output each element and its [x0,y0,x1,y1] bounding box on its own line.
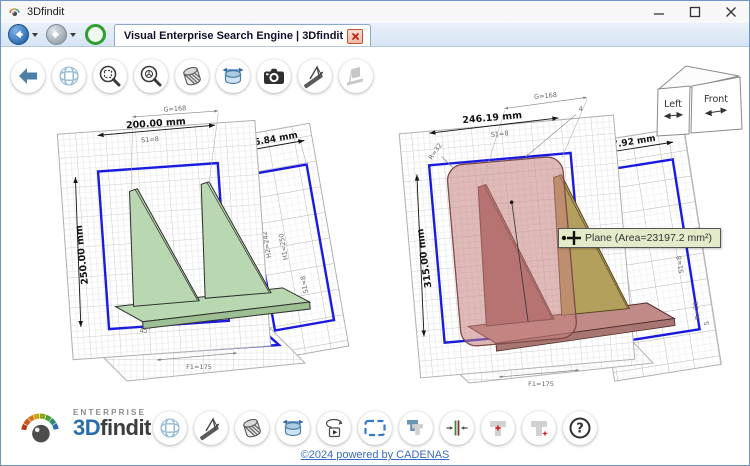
maximize-button[interactable] [677,1,713,23]
browser-tab[interactable]: Visual Enterprise Search Engine | 3Dfind… [114,24,371,46]
dim-s1-top: S1=8 [141,135,159,144]
measure-angle-button[interactable] [298,59,332,93]
view-cube-face-left[interactable] [657,86,690,136]
dim-leader-4: 4 [578,105,583,113]
part-origin-corner-icon [526,415,552,441]
back-arrow-icon [13,29,24,40]
part-origin-center-button[interactable] [481,411,515,445]
measure-angle-button-bottom[interactable] [194,411,228,445]
nav-forward-history-dropdown[interactable] [70,33,76,37]
tab-close-icon [351,32,360,41]
crosshair-cursor-icon [561,230,583,246]
measure-feature-icon [343,63,369,89]
forward-arrow-icon [51,29,62,40]
camera-icon [261,63,287,89]
wireframe-mesh-button[interactable] [52,59,86,93]
nav-forward-button[interactable] [46,24,67,45]
brand-logo-text: ENTERPRISE 3Dfindit [73,408,151,438]
app-logo-icon [7,6,22,19]
compare-parts-icon [403,415,429,441]
plane-area-tooltip: Plane (Area=23197.2 mm²) [558,228,721,248]
back-tool-button[interactable] [11,59,45,93]
nav-back-history-dropdown[interactable] [32,33,38,37]
zoom-frame-icon [362,415,388,441]
minimize-icon [653,6,665,18]
dim-s1-top: S1=8 [490,129,508,139]
tooltip-text: Plane (Area=23197.2 mm²) [585,232,712,244]
view-cube[interactable]: Left Front [646,59,746,151]
part-origin-center-icon [485,415,511,441]
measure-angle-icon [198,415,224,441]
view-cube-left-label: Left [664,99,682,110]
nav-back-button[interactable] [8,24,29,45]
dim-f1: F1=175 [186,363,212,371]
maximize-icon [689,6,701,18]
zoom-select-button[interactable] [134,59,168,93]
view-cube-front-label: Front [704,94,728,105]
nav-reload-button[interactable] [85,24,106,45]
tab-title: Visual Enterprise Search Engine | 3Dfind… [124,30,343,42]
compare-parts-button[interactable] [399,411,433,445]
measure-diameter-icon [280,415,306,441]
part-origin-corner-button[interactable] [522,411,556,445]
close-button[interactable] [713,1,749,23]
viewer-toolbar-bottom: ? [153,411,597,445]
wireframe-mesh-icon [56,63,82,89]
back-arrow-icon [15,63,41,89]
help-button[interactable]: ? [563,411,597,445]
section-view-button[interactable] [175,59,209,93]
section-view-button-bottom[interactable] [235,411,269,445]
copyright-link[interactable]: ©2024 powered by CADENAS [1,449,749,461]
help-icon: ? [567,415,593,441]
zoom-fit-button[interactable] [93,59,127,93]
measure-angle-icon [302,63,328,89]
align-parts-button[interactable] [440,411,474,445]
dim-angle: 45° [139,326,151,335]
minimize-button[interactable] [641,1,677,23]
window-title: 3Dfindit [27,6,64,18]
brand-logo-icon [11,405,69,453]
tab-close-button[interactable] [347,29,363,44]
viewer-toolbar-top [11,59,373,93]
align-parts-icon [444,415,470,441]
view-cube-face-front[interactable] [691,77,742,133]
help-glyph: ? [576,422,584,437]
section-view-icon [239,415,265,441]
dim-g: G=168 [163,104,186,114]
highlighted-plane[interactable] [446,156,577,347]
app-window: 3Dfindit Visual Enterprise Search Engine… [0,0,750,466]
zoom-fit-icon [97,63,123,89]
window-controls [641,1,749,23]
measure-diameter-button-bottom[interactable] [276,411,310,445]
close-icon [725,6,737,18]
animate-rotate-button[interactable] [317,411,351,445]
screenshot-button[interactable] [257,59,291,93]
zoom-select-icon [138,63,164,89]
wireframe-mesh-icon [157,415,183,441]
measure-diameter-button[interactable] [216,59,250,93]
brand-3d: 3D [73,415,100,440]
zoom-frame-button[interactable] [358,411,392,445]
dim-f1: F1=175 [528,380,554,388]
wireframe-mesh-button-bottom[interactable] [153,411,187,445]
section-view-icon [179,63,205,89]
title-bar: 3Dfindit [1,1,749,24]
measure-feature-button-disabled[interactable] [339,59,373,93]
measure-diameter-icon [220,63,246,89]
brand-findit: findit [100,415,151,440]
rotate-play-icon [321,415,347,441]
dim-g: G=168 [534,91,558,101]
left-model-viewport[interactable]: 196.84 mm H2=242 H1=250 S1=8 F1=175 [53,89,353,404]
